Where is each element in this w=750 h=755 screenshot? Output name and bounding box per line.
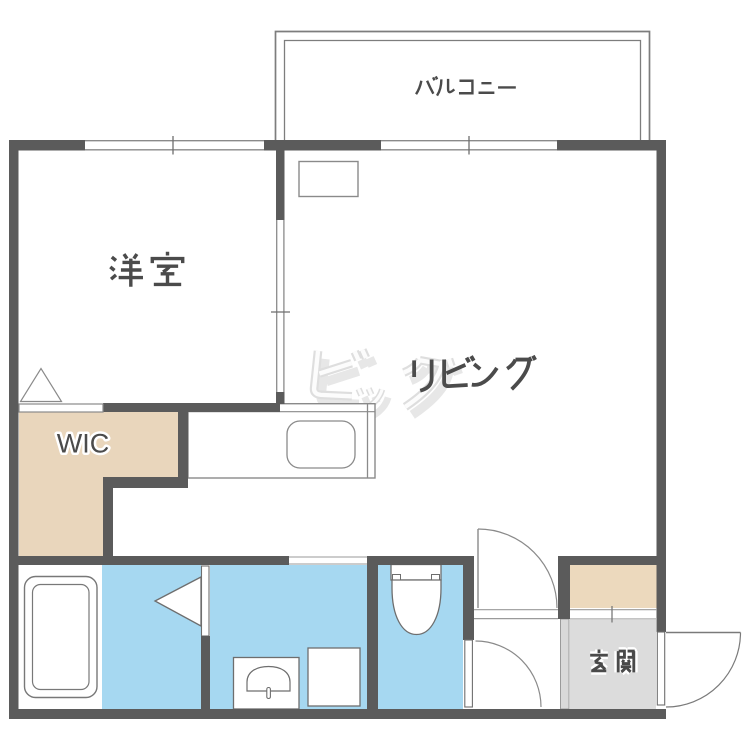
svg-text:WIC: WIC: [57, 429, 109, 459]
